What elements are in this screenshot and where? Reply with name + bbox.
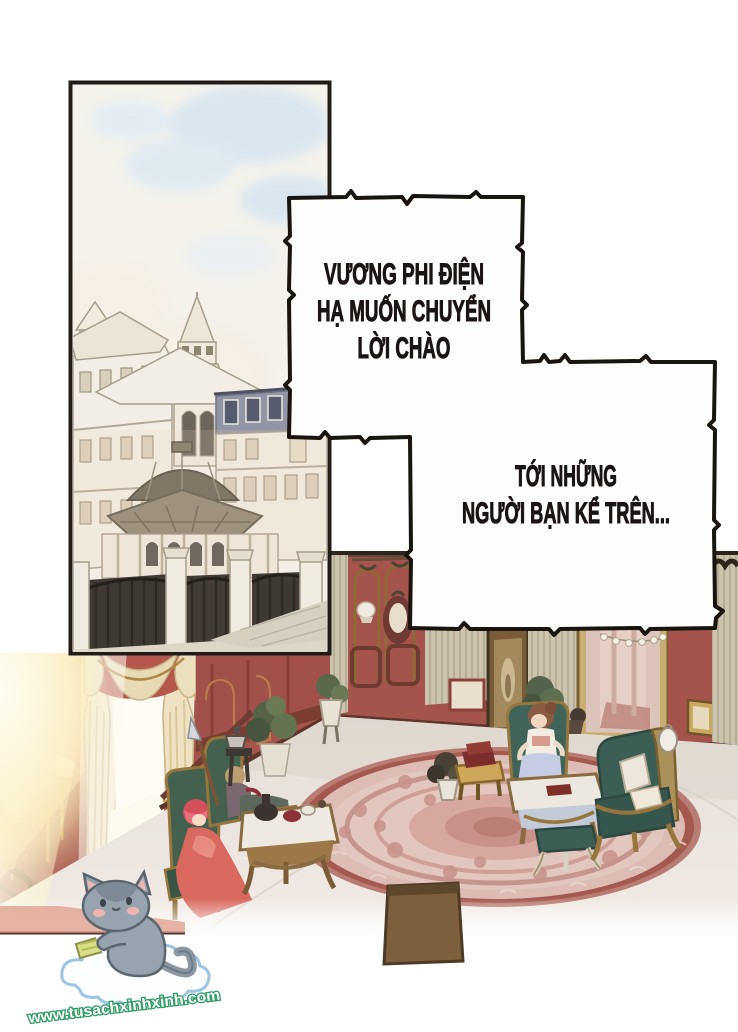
svg-text:VƯƠNG PHI ĐIỆN: VƯƠNG PHI ĐIỆN <box>324 257 484 291</box>
svg-text:LỜI CHÀO: LỜI CHÀO <box>358 331 451 365</box>
svg-text:TỚI NHỮNG: TỚI NHỮNG <box>515 459 617 493</box>
svg-text:HẠ MUỐN CHUYỂN: HẠ MUỐN CHUYỂN <box>317 294 491 328</box>
svg-text:NGƯỜI BẠN KỂ TRÊN...: NGƯỜI BẠN KỂ TRÊN... <box>462 496 670 530</box>
